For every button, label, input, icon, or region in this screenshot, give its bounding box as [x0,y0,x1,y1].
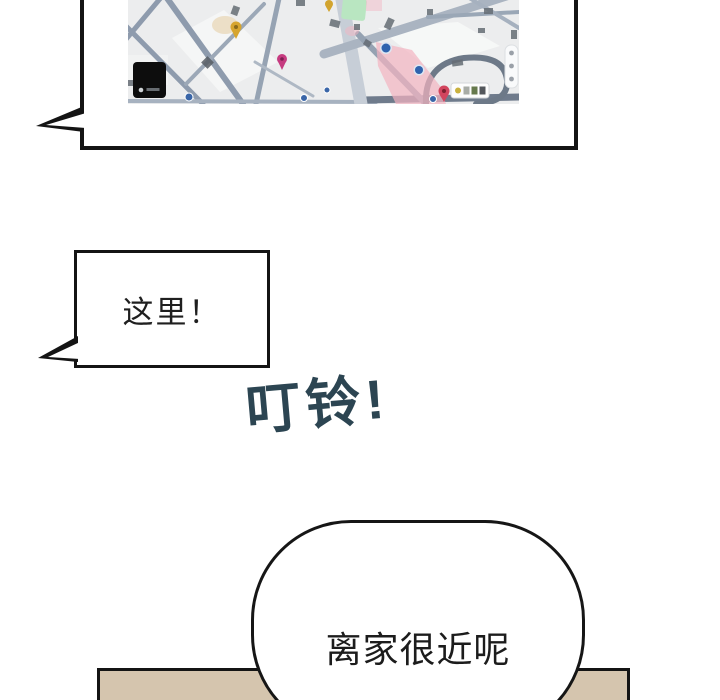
here-text: 这里！ [123,287,222,332]
sfx-text: 叮铃! [242,354,392,446]
here-speech-bubble: 这里！ [74,250,270,368]
map-bubble-tail-icon [32,102,88,138]
map-logo-badge [133,62,166,98]
comic-page: 这里！ 叮铃! 离家很近呢 [0,0,720,700]
near-home-text: 离家很近呢 [254,621,582,673]
map-legend-pill [451,83,489,98]
map-green-area [341,0,367,21]
map-image [128,0,519,104]
here-bubble-tail-icon [32,332,82,366]
near-home-speech-bubble: 离家很近呢 [251,520,585,700]
map-zoom-controls-icon [505,45,518,88]
